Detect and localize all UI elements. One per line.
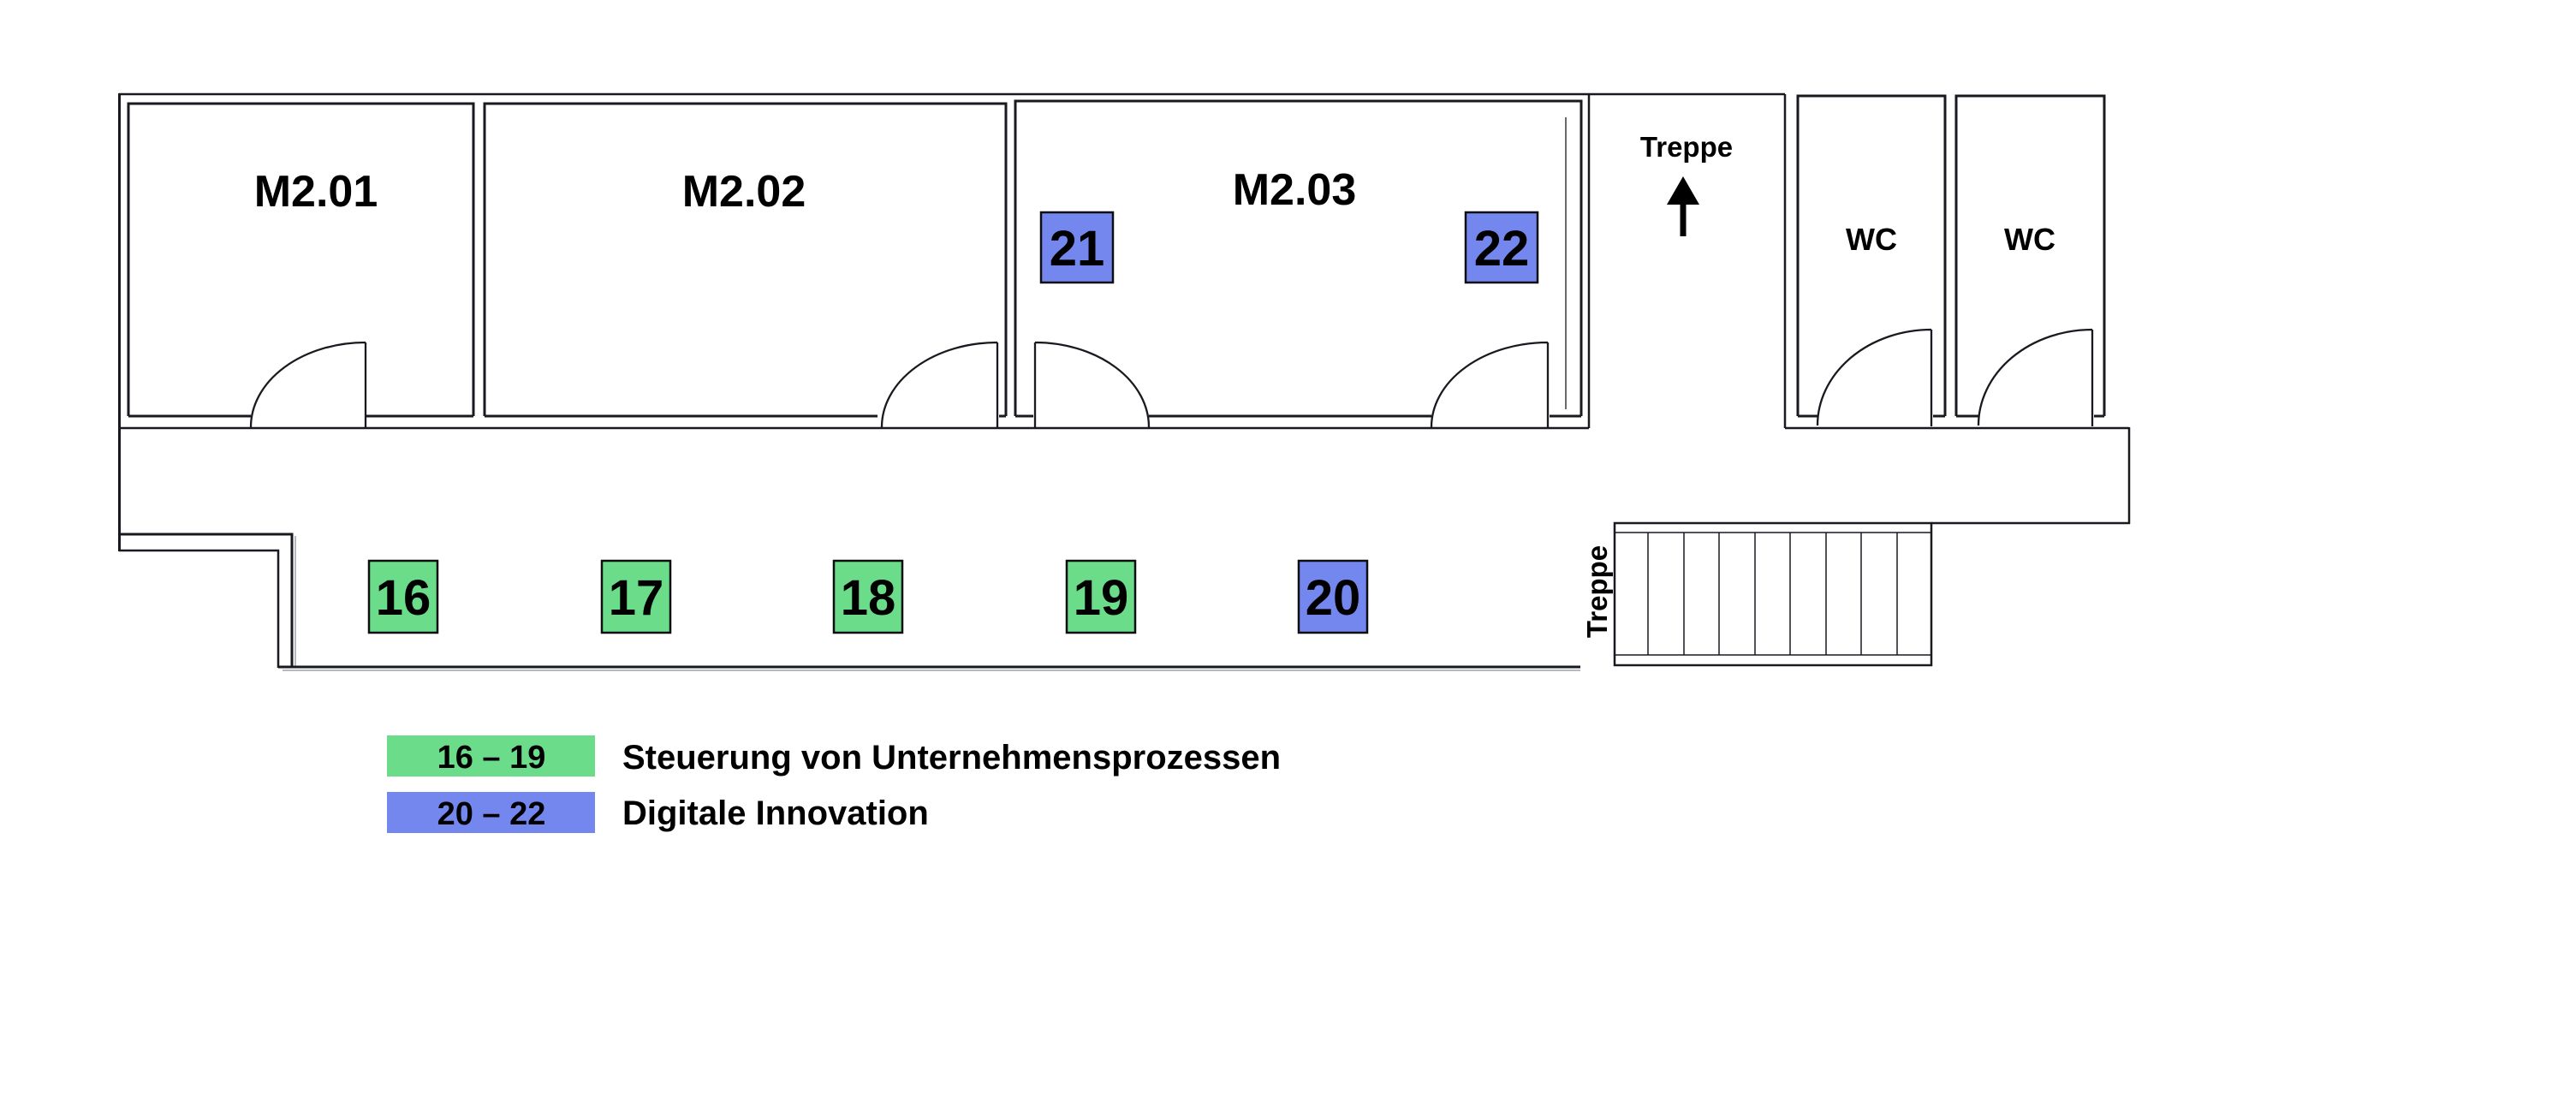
marker-21-number: 21: [1050, 221, 1105, 277]
marker-16-number: 16: [376, 570, 431, 626]
legend-range-green: 16 – 19: [437, 740, 546, 776]
door-wc1: [1817, 330, 1931, 426]
room-label-wc1: WC: [1846, 222, 1897, 257]
door-wc2: [1978, 330, 2092, 426]
legend-label-green: Steuerung von Unternehmensprozessen: [622, 739, 1281, 777]
stairs-inner-rails: [1615, 533, 1931, 655]
room-label-wc2: WC: [2004, 222, 2055, 257]
up-arrow-icon: [1667, 176, 1699, 236]
door-m203-right: [1431, 342, 1548, 428]
room-m202-walls: [485, 104, 1006, 416]
marker-18-number: 18: [841, 570, 896, 626]
marker-17-number: 17: [609, 570, 664, 626]
door-m203-left: [1035, 342, 1149, 428]
stairs: [1615, 523, 1931, 665]
legend: 16 – 19 Steuerung von Unternehmensprozes…: [387, 735, 1281, 833]
up-arrow-head: [1667, 176, 1699, 205]
room-label-m201: M2.01: [254, 167, 378, 217]
legend-range-blue: 20 – 22: [437, 796, 546, 832]
marker-22: 22: [1466, 212, 1538, 283]
stairs-top-label: Treppe: [1640, 131, 1733, 163]
room-label-m203: M2.03: [1233, 165, 1357, 215]
door-m201: [251, 342, 366, 428]
marker-20-number: 20: [1306, 570, 1361, 626]
stairs-side-label: Treppe: [1581, 545, 1613, 638]
marker-19: 19: [1067, 561, 1135, 633]
stairs-treads: [1648, 533, 1897, 655]
shadow-lines: [283, 536, 1580, 670]
notch-inner-wall: [119, 550, 278, 668]
marker-21: 21: [1041, 212, 1113, 283]
marker-17: 17: [602, 561, 670, 633]
doors: [251, 330, 2092, 428]
marker-19-number: 19: [1074, 570, 1129, 626]
marker-18: 18: [834, 561, 902, 633]
notch-outer-wall: [119, 534, 292, 668]
floor-plan-svg: M2.01 M2.02 M2.03 WC WC Treppe Treppe 16…: [0, 0, 2576, 1101]
stairs-outline: [1615, 523, 1931, 665]
marker-20: 20: [1299, 561, 1367, 633]
marker-16: 16: [369, 561, 437, 633]
marker-22-number: 22: [1474, 221, 1530, 277]
room-m201-walls: [128, 104, 473, 416]
door-m202: [882, 342, 997, 428]
room-label-m202: M2.02: [682, 167, 806, 217]
legend-label-blue: Digitale Innovation: [622, 795, 929, 832]
